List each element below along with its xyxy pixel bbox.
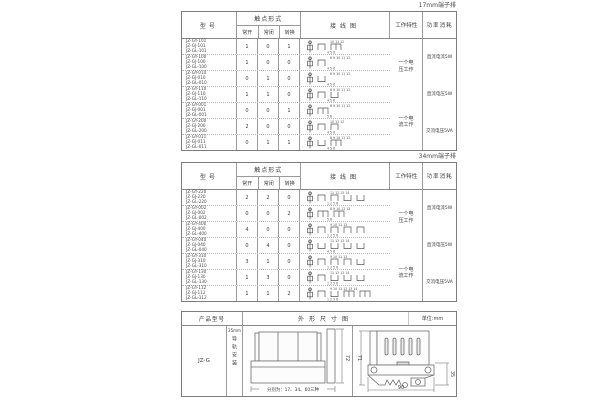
svg-text:4 5 6: 4 5 6 bbox=[327, 99, 335, 102]
content-column: 17mm端子排 型号 触点形式 常开 常闭 转换 接线图 工作特性 功率消耗 J… bbox=[181, 0, 457, 397]
header-outline-drawing: 外形尺寸图 bbox=[243, 312, 408, 325]
header-contact-form-label: 触点形式 bbox=[237, 12, 300, 26]
table-row: JZ-GY-001JZ-GJ-001JZ-GL-0010018 9 10 11 … bbox=[182, 102, 390, 118]
model-cell: JZ-GY-001JZ-GJ-001JZ-GL-001 bbox=[182, 103, 237, 118]
wiring-diagram-svg: 8 9 10 11 125 6 bbox=[300, 206, 390, 221]
svg-text:4 5 6: 4 5 6 bbox=[327, 131, 335, 134]
contact-count-co: 2 bbox=[279, 286, 300, 301]
model-number: JZ-GL-040 bbox=[186, 248, 236, 253]
contact-count-co: 1 bbox=[279, 39, 300, 54]
model-cell: JZ-GY-101JZ-GJ-101JZ-GL-101 bbox=[182, 39, 237, 54]
header-contact-form: 触点形式 常开 常闭 转换 bbox=[237, 163, 301, 189]
wiring-diagram-svg: 11 12 13 144 5 6 bbox=[300, 238, 390, 253]
power-dc-voltage: 直流电压5W bbox=[427, 92, 452, 97]
wiring-diagram: 10 11 124 5 6 bbox=[300, 39, 390, 54]
model-number: JZ-GL-310 bbox=[186, 264, 236, 269]
contact-count-nc: 0 bbox=[258, 39, 279, 54]
contact-count-no: 1 bbox=[237, 55, 258, 70]
header-characteristic: 工作特性 bbox=[390, 12, 423, 38]
header-contact-form-label: 触点形式 bbox=[237, 163, 300, 177]
header-model: 型号 bbox=[182, 163, 237, 189]
wiring-diagram-svg: 11 12 13 141 2 5 6 bbox=[300, 190, 390, 205]
spec-table2-rows: JZ-GY-220JZ-GJ-220JZ-GL-22022011 12 13 1… bbox=[182, 190, 390, 301]
wiring-diagram: 8 9 10 11 124 5 6 bbox=[300, 71, 390, 86]
contact-count-co: 2 bbox=[279, 206, 300, 221]
svg-text:9 10 11 12: 9 10 11 12 bbox=[330, 255, 347, 259]
table-row: JZ-GY-220JZ-GJ-220JZ-GL-22022011 12 13 1… bbox=[182, 190, 390, 205]
header-model: 型号 bbox=[182, 12, 237, 38]
svg-text:4 5 6: 4 5 6 bbox=[327, 67, 335, 70]
contact-count-no: 0 bbox=[237, 206, 258, 221]
svg-text:9 10 11 12 13 14: 9 10 11 12 13 14 bbox=[330, 287, 357, 291]
contact-count-no: 0 bbox=[237, 135, 258, 150]
wiring-diagram-svg: 8 9 10 11 124 5 6 bbox=[300, 55, 390, 70]
table-row: JZ-GY-200JZ-GJ-200JZ-GL-20020010 11 124 … bbox=[182, 118, 390, 134]
table2-power-cell: 直流电流5W 直流电压5W 交流电压5VA bbox=[423, 190, 456, 301]
contact-count-nc: 0 bbox=[258, 119, 279, 134]
header-normally-open: 常开 bbox=[237, 26, 258, 38]
power-dc-current: 直流电流5W bbox=[427, 55, 452, 60]
svg-text:1 2 5 6: 1 2 5 6 bbox=[327, 282, 338, 285]
contact-count-nc: 1 bbox=[258, 254, 279, 269]
contact-count-co: 0 bbox=[279, 190, 300, 205]
power-ac-voltage: 交流电压5VA bbox=[426, 280, 453, 285]
spec-table-34mm: 型号 触点形式 常开 常闭 转换 接线图 工作特性 功率消耗 JZ-GY-220… bbox=[181, 162, 457, 302]
table-row: JZ-GY-101JZ-GJ-101JZ-GL-10110110 11 124 … bbox=[182, 39, 390, 54]
model-number: JZ-GL-400 bbox=[186, 232, 236, 237]
contact-count-co: 0 bbox=[279, 270, 300, 285]
contact-count-no: 1 bbox=[237, 286, 258, 301]
model-cell: JZ-GY-130JZ-GJ-130JZ-GL-130 bbox=[182, 270, 237, 285]
table-row: JZ-GY-400JZ-GJ-400JZ-GL-4004009 10 11 12… bbox=[182, 221, 390, 237]
rail-width-dim: 35 bbox=[449, 371, 455, 377]
svg-text:1 2 5 6: 1 2 5 6 bbox=[327, 202, 338, 205]
wiring-diagram-svg: 8 9 10 11 124 5 6 bbox=[300, 71, 390, 86]
svg-text:9 10 11 12: 9 10 11 12 bbox=[330, 223, 347, 227]
model-number: JZ-GL-011 bbox=[186, 145, 236, 150]
contact-count-no: 3 bbox=[237, 254, 258, 269]
header-wiring-diagram: 接线图 bbox=[301, 12, 391, 38]
contact-count-co: 0 bbox=[279, 87, 300, 102]
contact-count-nc: 0 bbox=[258, 103, 279, 118]
front-view-drawing: 72 分别为：17、34、60三种 bbox=[243, 326, 353, 396]
svg-text:8 9 10 11 12: 8 9 10 11 12 bbox=[330, 136, 350, 140]
wiring-diagram: 9 10 11 12 13 141 2 5 6 bbox=[300, 286, 390, 301]
contact-count-nc: 0 bbox=[258, 55, 279, 70]
table-row: JZ-GY-040JZ-GJ-040JZ-GL-04004011 12 13 1… bbox=[182, 237, 390, 253]
header-power: 功率消耗 bbox=[423, 163, 456, 189]
svg-text:11 12 13 14: 11 12 13 14 bbox=[330, 191, 349, 195]
model-cell: JZ-GY-200JZ-GJ-200JZ-GL-200 bbox=[182, 119, 237, 134]
table-row: JZ-GY-130JZ-GJ-130JZ-GL-13013011 12 13 1… bbox=[182, 269, 390, 285]
power-ac-voltage: 交流电压5VA bbox=[426, 129, 453, 134]
model-number: JZ-GL-100 bbox=[186, 65, 236, 70]
spec-table2-header: 型号 触点形式 常开 常闭 转换 接线图 工作特性 功率消耗 bbox=[182, 163, 456, 190]
spec-table-17mm: 型号 触点形式 常开 常闭 转换 接线图 工作特性 功率消耗 JZ-GY-101… bbox=[181, 11, 457, 151]
svg-text:4 5 6: 4 5 6 bbox=[327, 147, 335, 150]
wiring-diagram: 8 9 10 11 124 5 6 bbox=[300, 135, 390, 150]
product-model-cell: JZ-G bbox=[182, 326, 227, 396]
contact-count-nc: 2 bbox=[258, 190, 279, 205]
wiring-diagram: 8 9 10 11 124 5 6 bbox=[300, 87, 390, 102]
wiring-diagram: 10 11 124 5 6 bbox=[300, 119, 390, 134]
svg-text:4 5 6: 4 5 6 bbox=[327, 83, 335, 86]
header-changeover: 转换 bbox=[279, 26, 300, 38]
wiring-diagram-svg: 11 12 13 141 2 5 6 bbox=[300, 270, 390, 285]
table1-characteristic-cell: 一个电压工作 一个电流工作 bbox=[390, 39, 423, 150]
front-view-svg: 72 分别为：17、34、60三种 bbox=[245, 327, 351, 395]
front-width-note: 分别为：17、34、60三种 bbox=[267, 386, 319, 393]
svg-text:11 12 13 14: 11 12 13 14 bbox=[330, 271, 349, 275]
svg-text:4 5 6: 4 5 6 bbox=[327, 51, 335, 54]
contact-count-nc: 1 bbox=[258, 135, 279, 150]
svg-text:1 2 5 6: 1 2 5 6 bbox=[327, 266, 338, 269]
model-number: JZ-GL-112 bbox=[186, 296, 236, 301]
header-contact-sub: 常开 常闭 转换 bbox=[237, 26, 300, 38]
model-number: JZ-GL-130 bbox=[186, 280, 236, 285]
model-number: JZ-GL-001 bbox=[186, 113, 236, 118]
wiring-diagram: 9 10 11 121 2 5 6 bbox=[300, 222, 390, 237]
wiring-diagram: 9 10 11 121 2 5 6 bbox=[300, 254, 390, 269]
contact-count-no: 2 bbox=[237, 119, 258, 134]
header-wiring-diagram: 接线图 bbox=[301, 163, 391, 189]
spec-table1-rows: JZ-GY-101JZ-GJ-101JZ-GL-10110110 11 124 … bbox=[182, 39, 390, 150]
header-power: 功率消耗 bbox=[423, 12, 456, 38]
side-view-drawing: 71 90 35 bbox=[353, 326, 456, 396]
contact-count-co: 0 bbox=[279, 55, 300, 70]
spec-table2-body: JZ-GY-220JZ-GJ-220JZ-GL-22022011 12 13 1… bbox=[182, 190, 456, 301]
dimension-table: 产品型号 外形尺寸图 单位:mm JZ-G 35mm 导轨安装 bbox=[181, 311, 457, 397]
table1-power-cell: 直流电流5W 直流电压5W 交流电压5VA bbox=[423, 39, 456, 150]
contact-count-nc: 0 bbox=[258, 222, 279, 237]
model-cell: JZ-GY-112JZ-GJ-112JZ-GL-112 bbox=[182, 286, 237, 301]
contact-count-no: 1 bbox=[237, 39, 258, 54]
mount-rail-text: 导轨安装 bbox=[231, 336, 238, 368]
spec-table1-body: JZ-GY-101JZ-GJ-101JZ-GL-10110110 11 124 … bbox=[182, 39, 456, 150]
contact-count-nc: 1 bbox=[258, 87, 279, 102]
header-product-model: 产品型号 bbox=[182, 312, 243, 325]
model-cell: JZ-GY-002JZ-GJ-002JZ-GL-002 bbox=[182, 206, 237, 221]
table-row: JZ-GY-011JZ-GJ-011JZ-GL-0110118 9 10 11 … bbox=[182, 134, 390, 150]
header-contact-sub: 常开 常闭 转换 bbox=[237, 177, 300, 189]
svg-text:5 6: 5 6 bbox=[327, 115, 332, 118]
wiring-diagram-svg: 8 9 10 11 124 5 6 bbox=[300, 135, 390, 150]
contact-count-co: 0 bbox=[279, 222, 300, 237]
table-row: JZ-GY-110JZ-GJ-110JZ-GL-1101108 9 10 11 … bbox=[182, 86, 390, 102]
header-normally-closed: 常闭 bbox=[258, 26, 279, 38]
characteristic-current: 一个电流工作 bbox=[398, 116, 415, 129]
model-cell: JZ-GY-310JZ-GJ-310JZ-GL-310 bbox=[182, 254, 237, 269]
svg-text:8 9 10 11 12: 8 9 10 11 12 bbox=[330, 72, 350, 76]
table-row: JZ-GY-002JZ-GJ-002JZ-GL-0020028 9 10 11 … bbox=[182, 205, 390, 221]
wiring-diagram-svg: 9 10 11 121 2 5 6 bbox=[300, 222, 390, 237]
model-cell: JZ-GY-040JZ-GJ-040JZ-GL-040 bbox=[182, 238, 237, 253]
power-dc-current: 直流电流5W bbox=[427, 206, 452, 211]
svg-text:8 9 10 11 12: 8 9 10 11 12 bbox=[330, 104, 350, 108]
mount-type-cell: 35mm 导轨安装 bbox=[227, 326, 243, 396]
svg-text:10 11 12: 10 11 12 bbox=[330, 120, 344, 124]
header-normally-closed: 常闭 bbox=[258, 177, 279, 189]
svg-text:4 5 6: 4 5 6 bbox=[327, 250, 335, 253]
contact-count-nc: 4 bbox=[258, 238, 279, 253]
svg-text:5 6: 5 6 bbox=[327, 218, 332, 221]
front-height-dim: 72 bbox=[344, 355, 350, 361]
wiring-diagram-svg: 10 11 124 5 6 bbox=[300, 39, 390, 54]
table-row: JZ-GY-010JZ-GJ-010JZ-GL-0100108 9 10 11 … bbox=[182, 70, 390, 86]
wiring-diagram-svg: 8 9 10 11 124 5 6 bbox=[300, 87, 390, 102]
contact-count-co: 1 bbox=[279, 103, 300, 118]
svg-text:11 12 13 14: 11 12 13 14 bbox=[330, 239, 349, 243]
model-number: JZ-GL-200 bbox=[186, 129, 236, 134]
contact-count-no: 1 bbox=[237, 87, 258, 102]
table-row: JZ-GY-100JZ-GJ-100JZ-GL-1001008 9 10 11 … bbox=[182, 54, 390, 70]
table-row: JZ-GY-310JZ-GJ-310JZ-GL-3103109 10 11 12… bbox=[182, 253, 390, 269]
wiring-diagram: 8 9 10 11 125 6 bbox=[300, 103, 390, 118]
model-number: JZ-GL-010 bbox=[186, 81, 236, 86]
characteristic-current: 一个电流工作 bbox=[398, 267, 415, 280]
model-number: JZ-GL-101 bbox=[186, 49, 236, 54]
wiring-diagram-svg: 8 9 10 11 125 6 bbox=[300, 103, 390, 118]
header-characteristic: 工作特性 bbox=[390, 163, 423, 189]
contact-count-no: 0 bbox=[237, 103, 258, 118]
wiring-diagram: 8 9 10 11 125 6 bbox=[300, 206, 390, 221]
table1-corner-label: 17mm端子排 bbox=[181, 0, 457, 11]
model-cell: JZ-GY-100JZ-GJ-100JZ-GL-100 bbox=[182, 55, 237, 70]
header-unit: 单位:mm bbox=[408, 312, 456, 325]
contact-count-co: 0 bbox=[279, 119, 300, 134]
dimension-table-body: JZ-G 35mm 导轨安装 bbox=[182, 326, 456, 396]
wiring-diagram: 11 12 13 141 2 5 6 bbox=[300, 190, 390, 205]
svg-text:10 11 12: 10 11 12 bbox=[330, 40, 344, 44]
svg-text:1 2 5 6: 1 2 5 6 bbox=[327, 298, 338, 301]
dimension-table-header: 产品型号 外形尺寸图 单位:mm bbox=[182, 312, 456, 326]
model-cell: JZ-GY-220JZ-GJ-220JZ-GL-220 bbox=[182, 190, 237, 205]
spec-table1-header: 型号 触点形式 常开 常闭 转换 接线图 工作特性 功率消耗 bbox=[182, 12, 456, 39]
mount-rail-size: 35mm bbox=[228, 329, 241, 333]
contact-count-nc: 0 bbox=[258, 206, 279, 221]
wiring-diagram-svg: 9 10 11 12 13 141 2 5 6 bbox=[300, 286, 390, 301]
characteristic-voltage: 一个电压工作 bbox=[398, 60, 415, 73]
side-height-dim: 71 bbox=[356, 355, 362, 361]
wiring-diagram: 8 9 10 11 124 5 6 bbox=[300, 55, 390, 70]
contact-count-nc: 1 bbox=[258, 71, 279, 86]
model-number: JZ-GL-110 bbox=[186, 97, 236, 102]
contact-count-nc: 3 bbox=[258, 270, 279, 285]
header-contact-form: 触点形式 常开 常闭 转换 bbox=[237, 12, 301, 38]
model-cell: JZ-GY-400JZ-GJ-400JZ-GL-400 bbox=[182, 222, 237, 237]
table-row: JZ-GY-112JZ-GJ-112JZ-GL-1121129 10 11 12… bbox=[182, 285, 390, 301]
wiring-diagram-svg: 9 10 11 121 2 5 6 bbox=[300, 254, 390, 269]
contact-count-co: 0 bbox=[279, 71, 300, 86]
contact-count-no: 1 bbox=[237, 270, 258, 285]
model-cell: JZ-GY-110JZ-GJ-110JZ-GL-110 bbox=[182, 87, 237, 102]
model-number: JZ-GL-002 bbox=[186, 216, 236, 221]
svg-text:8 9 10 11 12: 8 9 10 11 12 bbox=[330, 207, 350, 211]
wiring-diagram: 11 12 13 144 5 6 bbox=[300, 238, 390, 253]
power-dc-voltage: 直流电压5W bbox=[427, 243, 452, 248]
contact-count-co: 0 bbox=[279, 254, 300, 269]
characteristic-voltage: 一个电压工作 bbox=[398, 211, 415, 224]
contact-count-no: 2 bbox=[237, 190, 258, 205]
svg-text:8 9 10 11 12: 8 9 10 11 12 bbox=[330, 56, 350, 60]
side-width-dim: 90 bbox=[397, 385, 403, 391]
contact-count-co: 0 bbox=[279, 238, 300, 253]
side-view-svg: 71 90 35 bbox=[355, 327, 455, 395]
model-number: JZ-GL-220 bbox=[186, 200, 236, 205]
spacer bbox=[181, 302, 457, 310]
model-cell: JZ-GY-010JZ-GJ-010JZ-GL-010 bbox=[182, 71, 237, 86]
contact-count-no: 4 bbox=[237, 222, 258, 237]
header-changeover: 转换 bbox=[279, 177, 300, 189]
header-normally-open: 常开 bbox=[237, 177, 258, 189]
contact-count-nc: 1 bbox=[258, 286, 279, 301]
contact-count-co: 1 bbox=[279, 135, 300, 150]
wiring-diagram-svg: 10 11 124 5 6 bbox=[300, 119, 390, 134]
contact-count-no: 0 bbox=[237, 238, 258, 253]
svg-text:1 2 5 6: 1 2 5 6 bbox=[327, 234, 338, 237]
contact-count-no: 0 bbox=[237, 71, 258, 86]
model-cell: JZ-GY-011JZ-GJ-011JZ-GL-011 bbox=[182, 135, 237, 150]
table2-corner-label: 34mm端子排 bbox=[181, 151, 457, 162]
document-page: 17mm端子排 型号 触点形式 常开 常闭 转换 接线图 工作特性 功率消耗 J… bbox=[0, 0, 600, 400]
wiring-diagram: 11 12 13 141 2 5 6 bbox=[300, 270, 390, 285]
table2-characteristic-cell: 一个电压工作 一个电流工作 bbox=[390, 190, 423, 301]
svg-text:8 9 10 11 12: 8 9 10 11 12 bbox=[330, 88, 350, 92]
